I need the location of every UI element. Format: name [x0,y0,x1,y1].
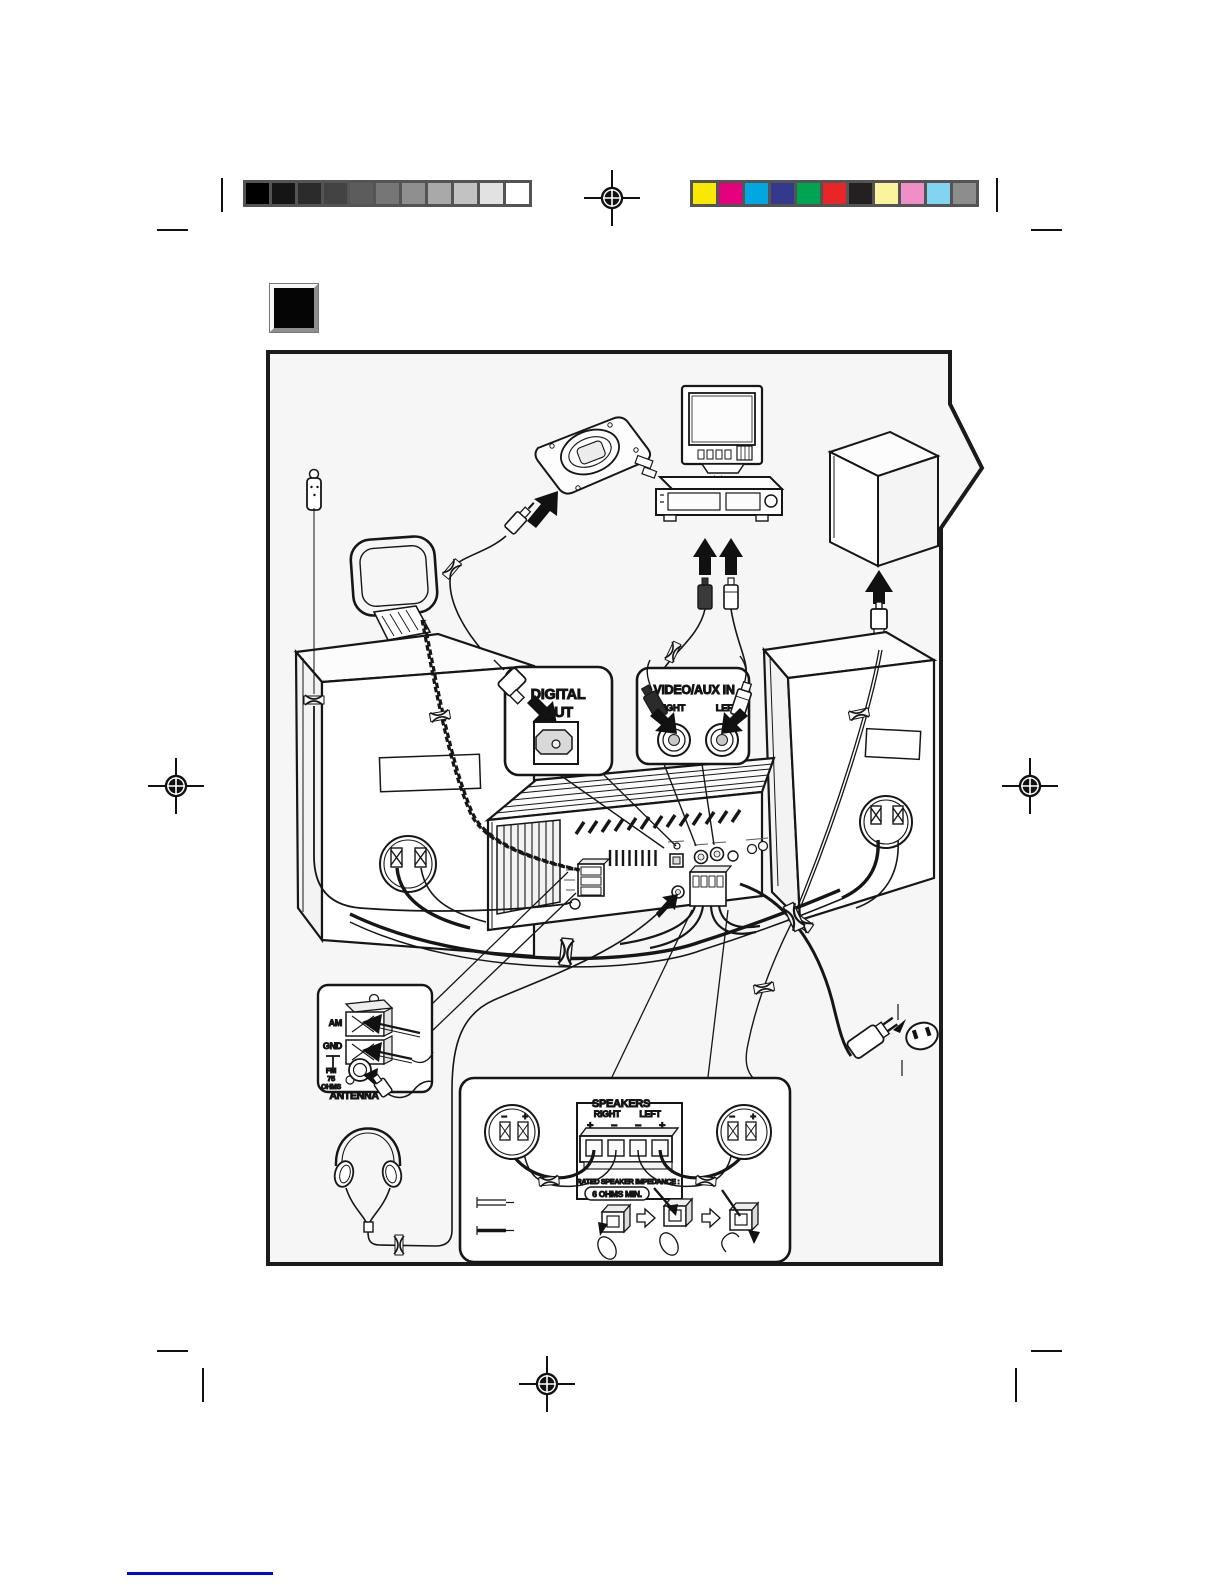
heatsink-fins [497,820,560,914]
gnd-label: GND [323,1041,343,1051]
impedance-label: RATED SPEAKER IMPEDANCE : [577,1177,680,1186]
unit-speaker-terminals [690,866,731,906]
svg-text:+: + [750,1112,756,1123]
speakers-right: RIGHT [594,1109,621,1119]
hookup-diagram: DIGITAL OUT VIDEO/AUX IN RIGHT LEFT [0,0,1225,1585]
svg-text:+: + [522,1112,528,1123]
right-terminal-cup: − + [717,1105,771,1159]
manual-page: DIGITAL OUT VIDEO/AUX IN RIGHT LEFT [0,0,1225,1585]
digital-out-label: DIGITAL [531,687,586,703]
video-aux-title: VIDEO/AUX IN [653,683,734,697]
fm-wire-antenna [307,470,321,511]
left-terminal-cup: − + [485,1105,539,1159]
digital-out-label2: OUT [543,705,573,721]
ohms-value: 75 [327,1074,335,1083]
svg-text:−: − [729,1112,735,1123]
antenna-title: ANTENNA [329,1090,379,1102]
vcr [656,477,782,521]
impedance-value: 6 OHMS MIN. [592,1189,642,1199]
am-label: AM [329,1018,342,1028]
speakers-left: LEFT [639,1109,661,1119]
svg-text:−: − [501,1112,507,1123]
